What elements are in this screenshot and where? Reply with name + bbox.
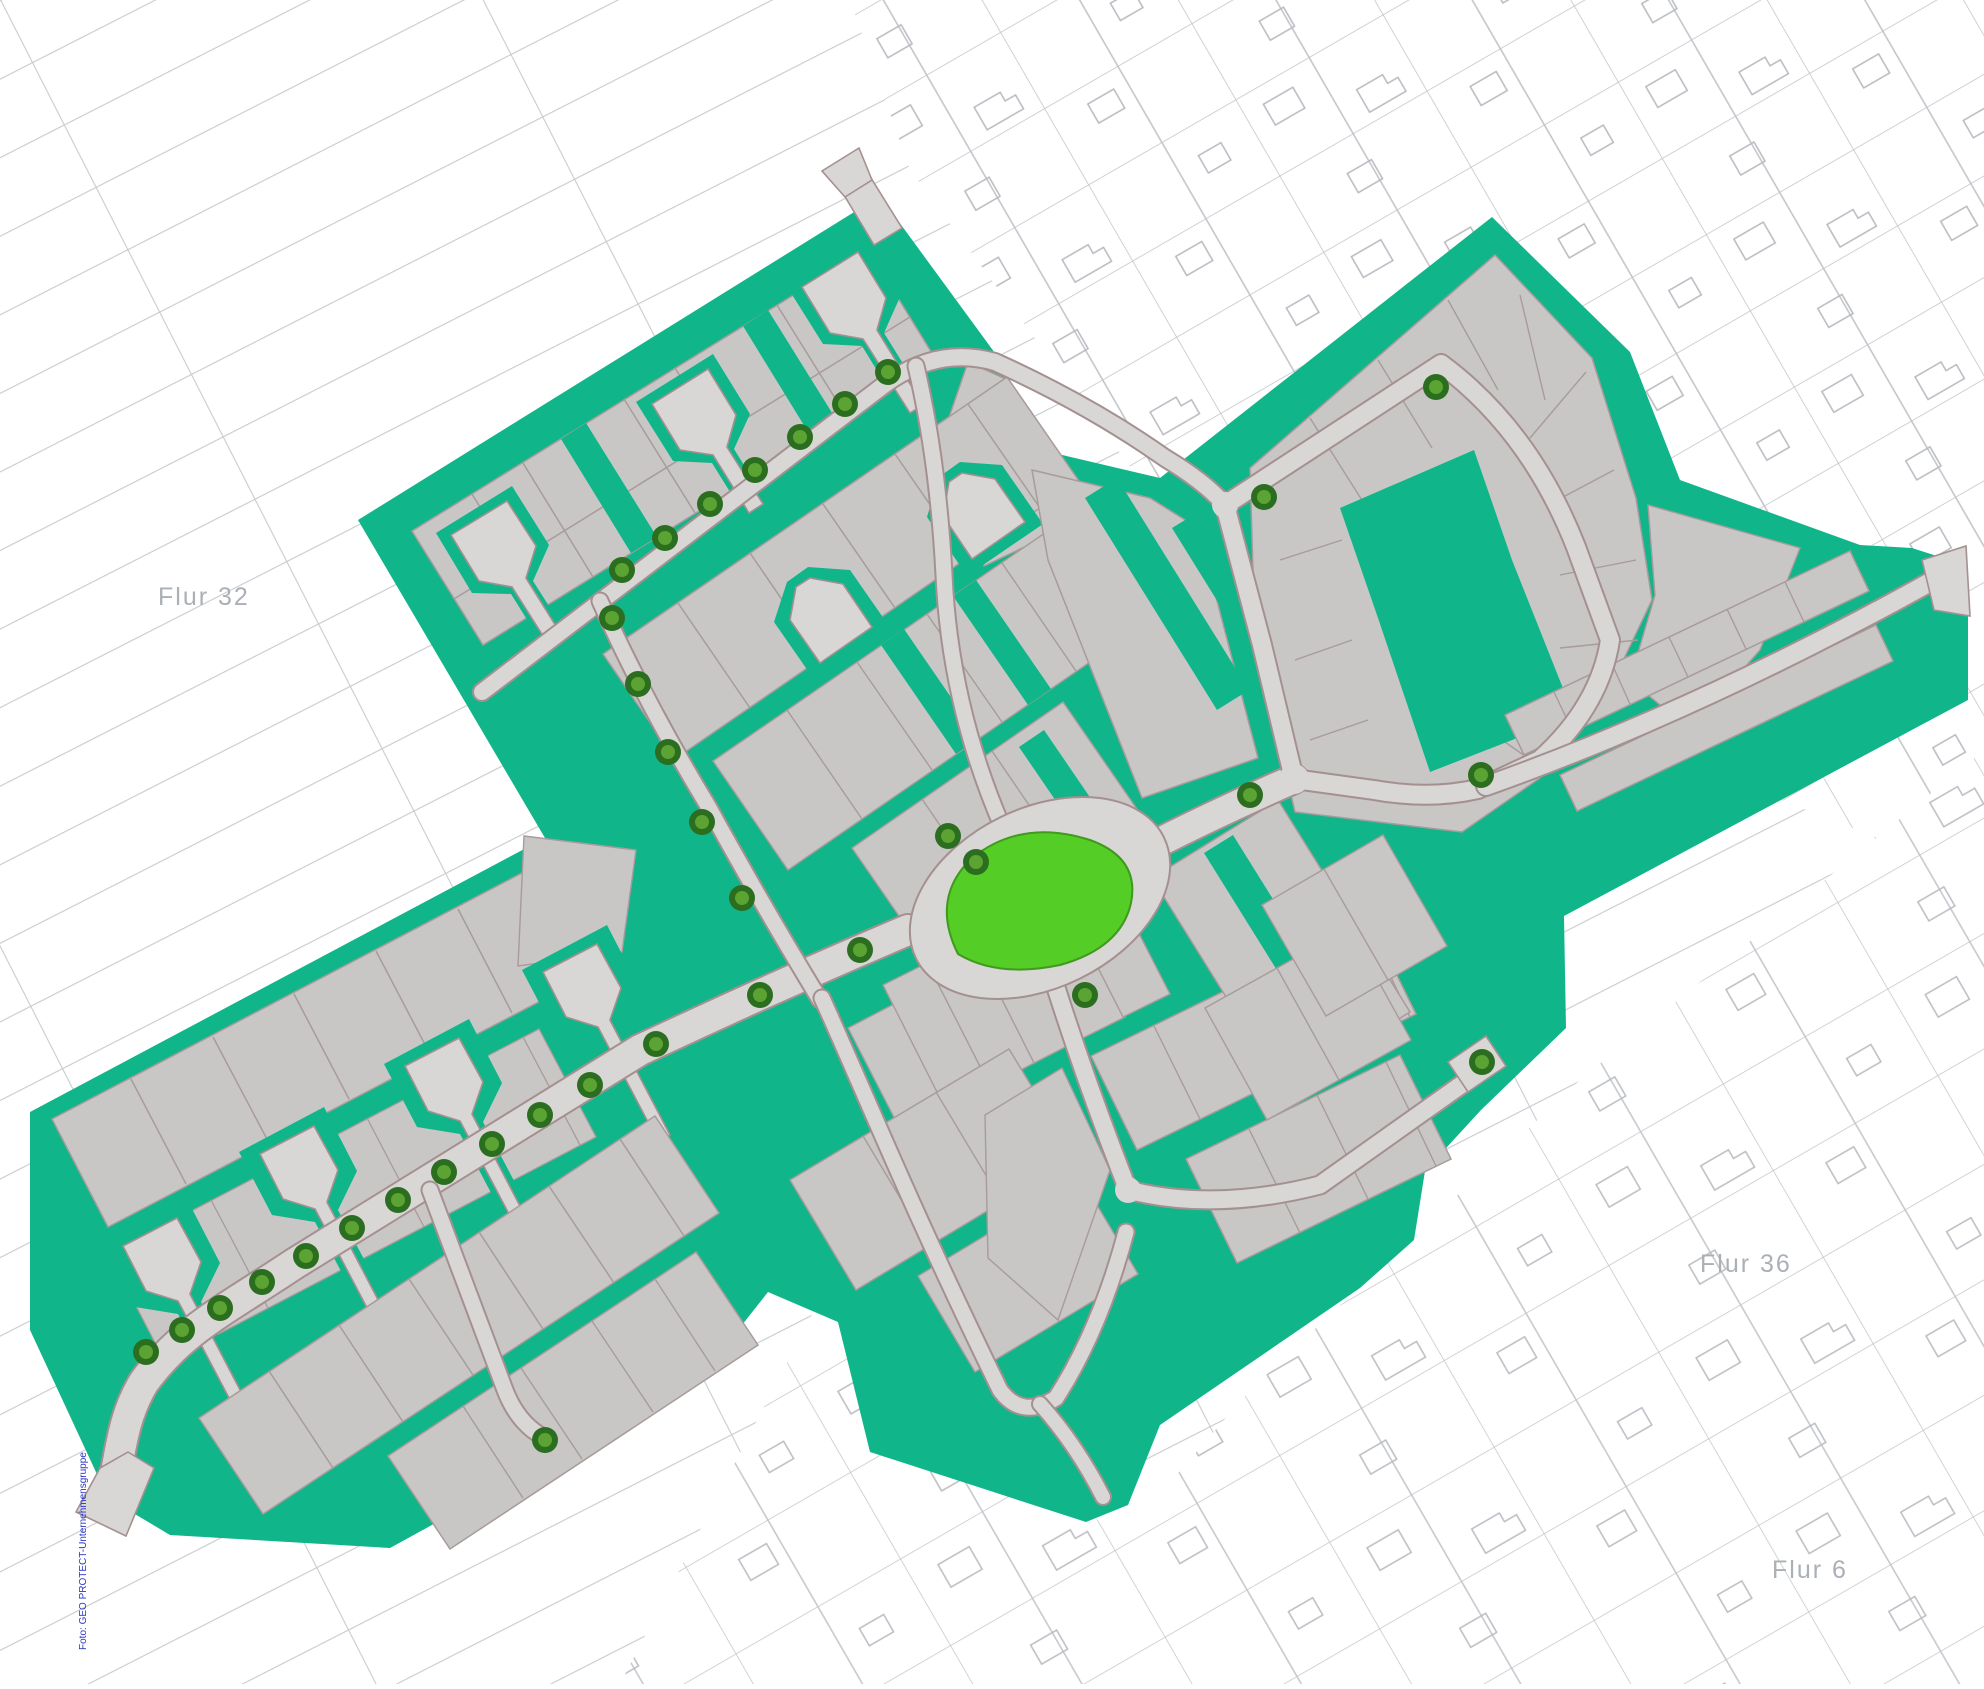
svg-text:Flur 6: Flur 6 [1772,1556,1848,1584]
svg-text:Flur 36: Flur 36 [1700,1250,1792,1278]
svg-text:Foto: GEO PROTECT-Unternehmens: Foto: GEO PROTECT-Unternehmensgruppe [78,1452,89,1650]
svg-text:Flur 32: Flur 32 [158,583,250,611]
